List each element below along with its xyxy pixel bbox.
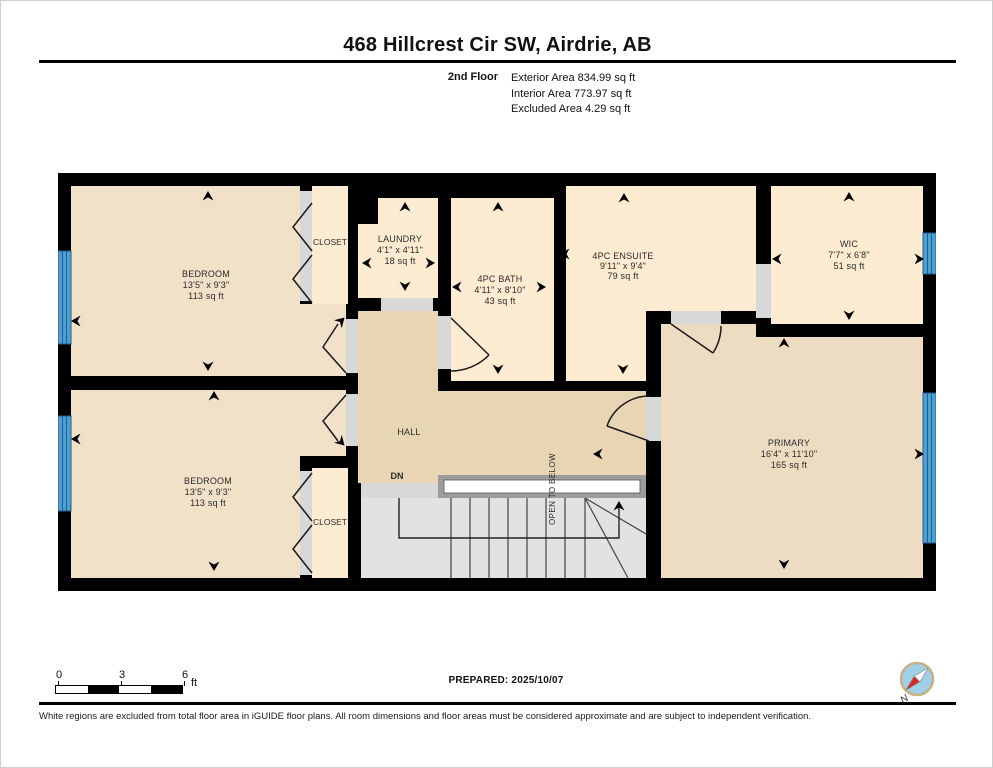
room-label: PRIMARY <box>768 438 810 448</box>
disclaimer-text: White regions are excluded from total fl… <box>39 711 956 722</box>
door-opening-closet-top <box>300 191 312 301</box>
door-opening-wic <box>756 264 771 318</box>
room-label: 4PC ENSUITE <box>592 251 653 261</box>
stair-landing <box>361 483 438 498</box>
window-bedroom-bottom <box>58 416 71 511</box>
floor-plan-drawing: BEDROOM 13'5" x 9'3" 113 sq ft BEDROOM 1… <box>58 173 936 591</box>
scale-bar-segments <box>55 685 183 694</box>
room-label: LAUNDRY <box>378 234 422 244</box>
prepared-date: PREPARED: 2025/10/07 <box>356 675 656 686</box>
scale-tickmark <box>184 681 185 686</box>
door-opening-bedroom-top <box>346 319 358 373</box>
floor-label: 2nd Floor <box>331 71 498 83</box>
room-label: WIC <box>840 239 858 249</box>
room-area: 165 sq ft <box>771 460 808 470</box>
door-opening-laundry <box>381 298 433 311</box>
room-area: 113 sq ft <box>188 291 224 301</box>
room-area: 43 sq ft <box>484 296 515 306</box>
room-dims: 4'11" x 8'10" <box>474 285 525 295</box>
window-bedroom-top <box>58 251 71 344</box>
room-area: 18 sq ft <box>384 256 415 266</box>
door-opening-bath <box>438 316 451 369</box>
exterior-area: Exterior Area 834.99 sq ft <box>511 71 635 87</box>
compass: N <box>894 655 942 707</box>
room-label: BEDROOM <box>182 269 230 279</box>
room-dims: 13'5" x 9'3" <box>183 280 230 290</box>
scale-segment <box>119 686 151 693</box>
footer-divider <box>39 702 956 705</box>
down-label: DN <box>391 471 404 481</box>
scale-bar: 0 3 6 ft <box>51 669 221 694</box>
door-opening-ensuite <box>671 311 721 324</box>
room-dims: 7'7" x 6'8" <box>828 250 870 260</box>
scale-tick-3: 3 <box>119 669 125 681</box>
floor-plan-page: 468 Hillcrest Cir SW, Airdrie, AB 2nd Fl… <box>0 0 993 768</box>
scale-segment <box>88 686 120 693</box>
window-primary <box>923 393 936 543</box>
room-dims: 4'1" x 4'11" <box>377 245 423 255</box>
room-area: 51 sq ft <box>833 261 864 271</box>
scale-segment <box>151 686 183 693</box>
scale-tick-6: 6 <box>182 669 188 681</box>
area-summary: Exterior Area 834.99 sq ft Interior Area… <box>511 71 635 118</box>
header-divider <box>39 60 956 63</box>
door-opening-bedroom-bottom <box>346 394 358 446</box>
room-dims: 16'4" x 11'10" <box>761 449 818 459</box>
room-label: 4PC BATH <box>478 274 523 284</box>
scale-unit: ft <box>191 677 197 689</box>
page-title: 468 Hillcrest Cir SW, Airdrie, AB <box>1 34 993 57</box>
scale-segment <box>56 686 88 693</box>
room-dims: 13'5" x 9'3" <box>185 487 232 497</box>
window-wic <box>923 233 936 274</box>
door-opening-primary <box>646 397 661 441</box>
room-dims: 9'11" x 9'4" <box>600 261 646 271</box>
room-label: CLOSET <box>313 237 347 247</box>
open-to-below-label: OPEN TO BELOW <box>548 453 557 525</box>
interior-area: Interior Area 773.97 sq ft <box>511 87 635 103</box>
excluded-area: Excluded Area 4.29 sq ft <box>511 102 635 118</box>
room-label: BEDROOM <box>184 476 232 486</box>
room-label: CLOSET <box>313 517 347 527</box>
room-area: 79 sq ft <box>607 271 638 281</box>
open-to-below-void <box>444 480 640 493</box>
room-area: 113 sq ft <box>190 498 226 508</box>
room-label: HALL <box>397 427 420 437</box>
laundry-notch <box>358 198 378 224</box>
scale-tick-0: 0 <box>56 669 62 681</box>
